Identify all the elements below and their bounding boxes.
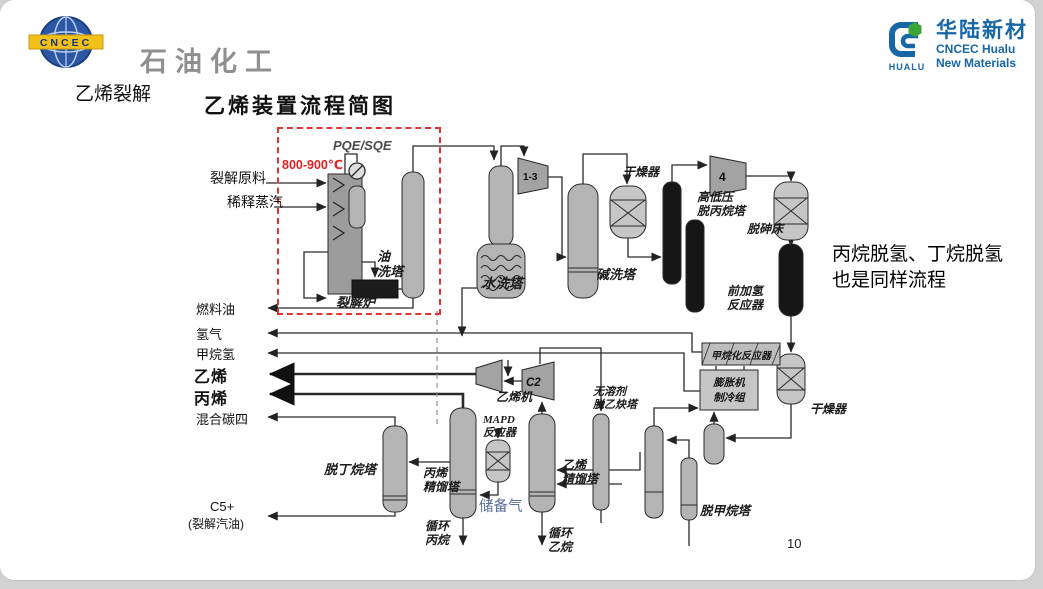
depropanizer-label: 高低压 脱丙烷塔	[697, 190, 745, 218]
dryer-right-label: 干燥器	[810, 402, 846, 416]
demethanizer-label: 脱甲烷塔	[700, 504, 750, 519]
methanation-reactor-label: 甲烷化反应器	[703, 347, 779, 362]
ethylene-product-label: 乙烯	[194, 363, 228, 387]
furnace-label: 裂解炉	[336, 295, 375, 310]
debutanizer-label: 脱丁烷塔	[324, 462, 376, 477]
arsine-bed-label: 脱砷床	[747, 222, 783, 236]
expander-unit-label: 膨胀机 制冷组	[701, 375, 757, 405]
compressor-1-3-label: 1-3	[523, 172, 538, 183]
mixed-c4-label: 混合碳四	[196, 409, 248, 428]
recycle-propane-label: 循环 丙烷	[425, 519, 449, 547]
screenshot-stage: CNCEC 石油化工 HUALU 华陆新材 CNCEC Hualu New Ma…	[0, 0, 1043, 589]
depropanizer-column-lp	[686, 220, 704, 312]
water-wash-label: 水洗塔	[482, 276, 523, 292]
mapd-reactor-vessel	[486, 440, 510, 482]
methane-hydrogen-label: 甲烷氢	[196, 344, 235, 363]
oil-wash-label: 油 洗塔	[377, 249, 403, 280]
ethylene-compressor-label: 乙烯机	[496, 390, 532, 404]
front-hydrogenation-label: 前加氢 反应器	[727, 284, 763, 312]
furnace-section-highlight-box	[277, 127, 441, 315]
compressor-4-label: 4	[719, 170, 726, 184]
page-number: 10	[787, 536, 801, 551]
mapd-reactor-label: MAPD 反应器	[483, 414, 516, 440]
c5-note-label: (裂解汽油)	[188, 515, 244, 532]
caustic-wash-column	[568, 184, 598, 298]
ethylene-fractionator-column	[529, 414, 555, 512]
feed-label: 裂解原料	[210, 168, 266, 188]
dilution-steam-label: 稀释蒸汽	[227, 192, 283, 212]
temperature-label: 800-900℃	[282, 157, 343, 172]
reserve-gas-label: 储备气	[479, 495, 523, 516]
debutanizer-column	[383, 426, 407, 512]
presentation-slide: CNCEC 石油化工 HUALU 华陆新材 CNCEC Hualu New Ma…	[0, 0, 1035, 580]
propylene-product-label: 丙烯	[194, 385, 228, 409]
propylene-fractionator-label: 丙烯 精馏塔	[423, 466, 459, 494]
propylene-fractionator-column	[450, 408, 476, 518]
depropanizer-column-hp	[663, 182, 681, 284]
c5-label: C5+	[210, 499, 234, 514]
dryer-vessel-right	[777, 354, 805, 404]
side-annotation: 丙烷脱氢、丁烷脱氢 也是同样流程	[832, 242, 1036, 294]
front-hydrogenation-reactor	[779, 244, 803, 316]
fuel-oil-label: 燃料油	[196, 299, 235, 318]
recycle-ethane-label: 循环 乙烷	[548, 526, 572, 554]
dryer-top-label: 干燥器	[623, 165, 659, 179]
hydrogen-label: 氢气	[196, 324, 222, 343]
caustic-wash-label: 碱洗塔	[596, 267, 635, 282]
pqe-sqe-label: PQE/SQE	[333, 138, 392, 153]
dryer-vessel-top	[610, 186, 646, 238]
ethylene-fractionator-label: 乙烯 精馏塔	[562, 458, 598, 486]
compressor-c2-label: C2	[526, 377, 541, 389]
booster-compressor	[476, 360, 502, 392]
reflux-drum	[704, 424, 724, 464]
deacetylene-tower-label: 无溶剂 脱乙炔塔	[593, 386, 637, 412]
